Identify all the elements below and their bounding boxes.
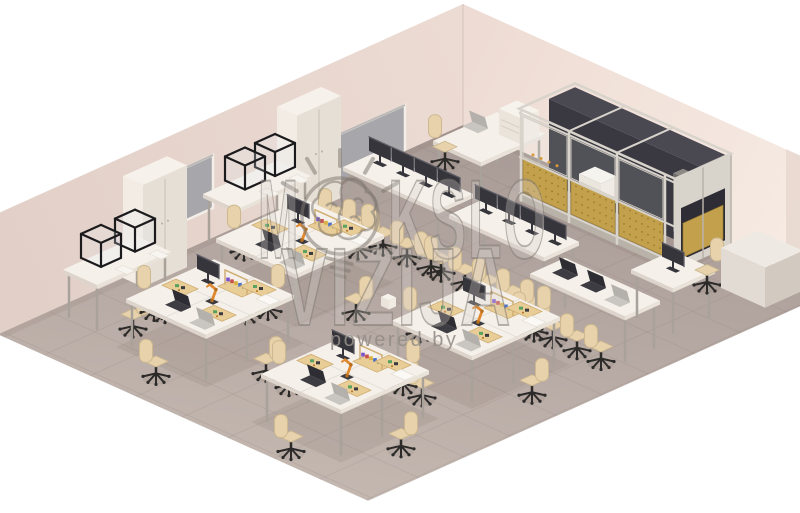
watermark-tagline: powered by	[330, 329, 458, 351]
isometric-lab-render: M KSLO VIZIJA powered by	[0, 0, 800, 513]
scene-canvas: M KSLO VIZIJA powered by	[0, 0, 800, 513]
